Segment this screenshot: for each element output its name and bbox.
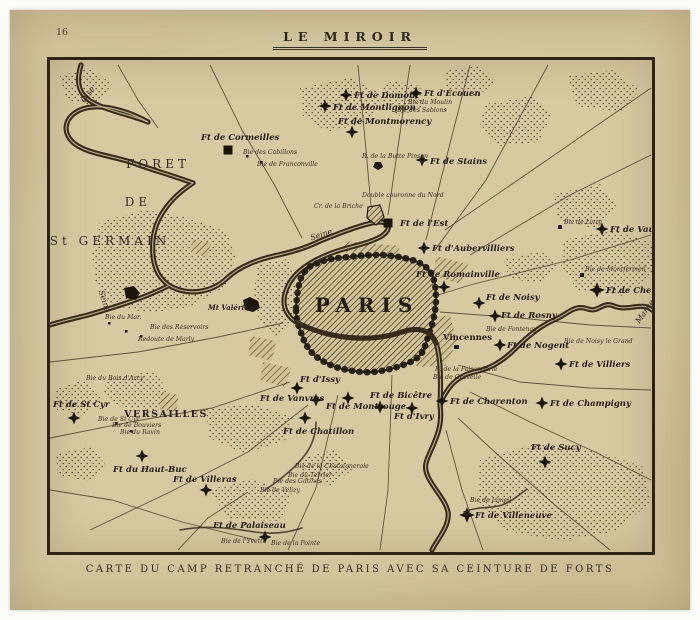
place-label: VERSAILLES <box>123 409 208 420</box>
battery-label: Redoute de Marly <box>137 336 195 343</box>
fort-label: Ft de l'Est <box>399 219 448 229</box>
river-label: Marne <box>633 298 652 326</box>
woods-patch <box>480 96 552 146</box>
battery-label: Bie de Montfermeil <box>584 266 646 273</box>
paris-city-label: PARIS <box>315 293 420 317</box>
fort-label: Ft d'Ecouen <box>423 89 481 99</box>
woods-patch <box>54 379 101 416</box>
fort-label: Ft du Haut-Buc <box>112 465 188 475</box>
map-frame: PARIS Ft de CormeillesFt de Dom <box>47 57 655 555</box>
battery-dot <box>125 330 128 333</box>
battery-label: Bie de la Chataigneraie <box>294 463 369 470</box>
fort-label: Ft de Sucy <box>530 443 582 453</box>
battery-label: Bie de Bouviers <box>111 422 161 429</box>
fort-marker <box>346 126 359 139</box>
fort-label: Ft de Palaiseau <box>212 521 286 531</box>
fort-diamond-icon <box>536 397 549 410</box>
battery-label: R. de la Butte Pinson <box>361 153 428 160</box>
fort-label: Ft de Chatillon <box>282 427 354 437</box>
fort-diamond-icon <box>346 126 359 139</box>
place-label: Mt Valérien <box>207 303 254 312</box>
fort-label: Ft de St Cyr <box>52 400 110 410</box>
woods-patch <box>56 447 106 481</box>
fort-label: Ft de Rosny <box>500 311 558 321</box>
fort-label: Ft de Montrouge <box>325 402 407 412</box>
fort-diamond-icon <box>136 450 149 463</box>
battery-square-symbol <box>558 225 562 229</box>
suburb-hatch <box>248 336 276 361</box>
battery-label: Bie de Fontenay <box>485 326 537 333</box>
fort-diamond-icon <box>418 242 431 255</box>
fort-label: Ft d'Issy <box>299 375 341 385</box>
magazine-page: 16 LE MIROIR <box>10 10 690 610</box>
battery-label: Bie de Gravelle <box>432 374 481 381</box>
fort-marker <box>494 339 507 352</box>
fort-label: Ft de Romainville <box>415 270 501 280</box>
battery-label: Bie du Moulin <box>407 99 452 106</box>
battery-label: Cr. de la Briche <box>314 203 363 210</box>
fort-marker <box>136 450 149 463</box>
fort-label: Ft de Vaujours <box>609 225 652 235</box>
fort-label: Ft de Chelles <box>605 286 652 296</box>
map-canvas: PARIS Ft de CormeillesFt de Dom <box>50 60 652 552</box>
fort-label: Ft de Bicêtre <box>369 390 433 401</box>
fort-diamond-icon <box>494 339 507 352</box>
woods-patch <box>568 70 640 112</box>
fort-marker <box>418 242 431 255</box>
masthead-wrap: LE MIROIR <box>10 26 690 50</box>
fort-marker <box>489 310 502 323</box>
fort-marker <box>536 397 549 410</box>
fort-label: Ft de Nogent <box>506 341 569 351</box>
fort-diamond-icon <box>489 310 502 323</box>
fort-marker <box>555 358 568 371</box>
masthead-title: LE MIROIR <box>273 29 427 50</box>
battery-label: Bie de la Pointe <box>270 540 320 547</box>
fort-label: Ft de Montmorency <box>337 117 432 127</box>
fort-diamond-icon <box>384 219 393 228</box>
fort-label: Ft d'Aubervilliers <box>431 244 515 254</box>
fort-label: Ft de Vanvres <box>259 394 325 404</box>
battery-label: Bie des Gatines <box>272 478 322 485</box>
fort-label: Ft de Noisy <box>485 293 541 303</box>
fort-diamond-icon <box>224 146 233 155</box>
fort-diamond-icon <box>473 297 486 310</box>
battery-label: Bie de Vélizy <box>259 487 301 494</box>
vincennes-donjon-symbol <box>454 345 459 349</box>
fort-label: Ft de Stains <box>429 157 487 167</box>
paris-enceinte: PARIS <box>296 255 436 372</box>
place-label: DE <box>125 195 151 209</box>
fort-label: Ft de Charenton <box>449 397 528 407</box>
foret-st-germain-woods <box>92 210 236 313</box>
fort-label: Ft de Villeneuve <box>474 511 552 521</box>
sucy-woods <box>477 444 651 541</box>
battery-label: Bie des Réservoirs <box>149 324 208 331</box>
map-caption: CARTE DU CAMP RETRANCHÉ DE PARIS AVEC SA… <box>10 564 690 575</box>
battery-label: Bie des Cabillons <box>242 149 297 156</box>
battery-label: Bie de Livry <box>563 219 602 226</box>
fort-label: Ft de Cormeilles <box>200 133 280 143</box>
fort-diamond-icon <box>200 484 213 497</box>
battery-label: Bie du Bois d'Arcy <box>85 375 144 382</box>
fort-label: Ft de Villiers <box>568 360 630 370</box>
fort-marker <box>200 484 213 497</box>
battery-label: Bie des Sablons <box>396 107 447 114</box>
battery-dot <box>108 322 111 325</box>
place-label: St GERMAIN <box>50 234 170 248</box>
woods-patch <box>504 251 556 283</box>
fort-label: Ft de Champigny <box>549 399 632 409</box>
battery-label: Bie du Ravin <box>119 429 160 436</box>
battery-square-symbol <box>580 273 584 277</box>
fort-marker <box>224 146 233 155</box>
battery-label: Double couronne du Nord <box>361 192 444 199</box>
woods-patch <box>208 479 292 521</box>
battery-label: Bie de Noisy le Grand <box>563 338 633 345</box>
place-label: Vincennes <box>442 333 492 343</box>
fort-label: Ft d'Ivry <box>393 412 435 422</box>
battery-label: Bie de Franconville <box>256 161 318 168</box>
fort-diamond-icon <box>299 412 312 425</box>
butte-pinson-redoubt-symbol <box>373 162 383 170</box>
fort-marker <box>473 297 486 310</box>
fort-diamond-icon <box>555 358 568 371</box>
fort-marker <box>299 412 312 425</box>
fort-label: Ft de Villeras <box>172 475 237 485</box>
battery-label: Bie de Limeil <box>469 497 511 504</box>
place-label: FORET <box>126 157 190 171</box>
battery-label: Bie du Mar. <box>104 314 141 321</box>
fort-marker <box>384 219 393 228</box>
battery-label: R. de la Faisanderie <box>434 366 498 373</box>
battery-label: Bie de l'Yvette <box>220 538 267 545</box>
